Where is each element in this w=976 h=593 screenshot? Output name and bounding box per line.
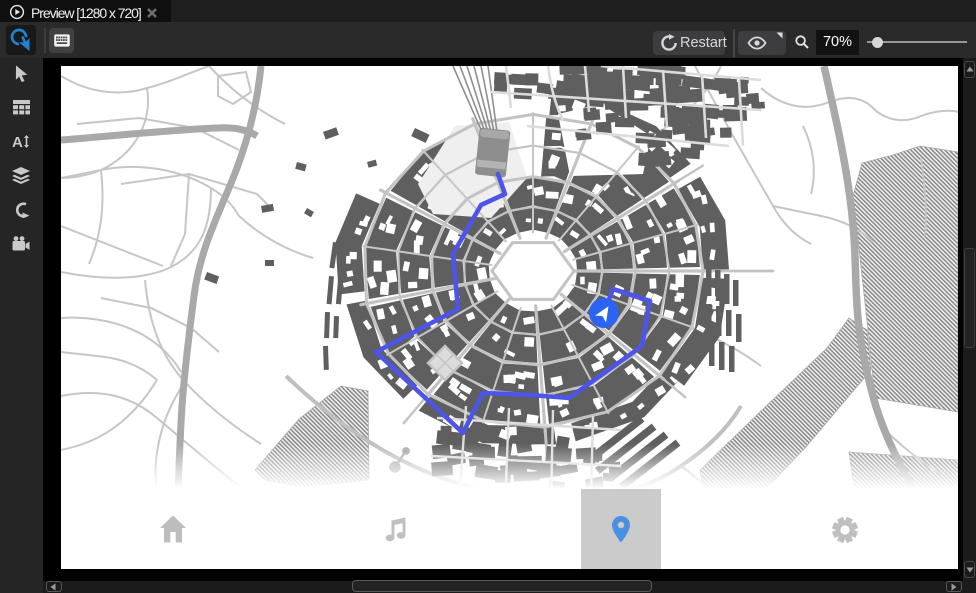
svg-text:A: A — [12, 134, 23, 150]
